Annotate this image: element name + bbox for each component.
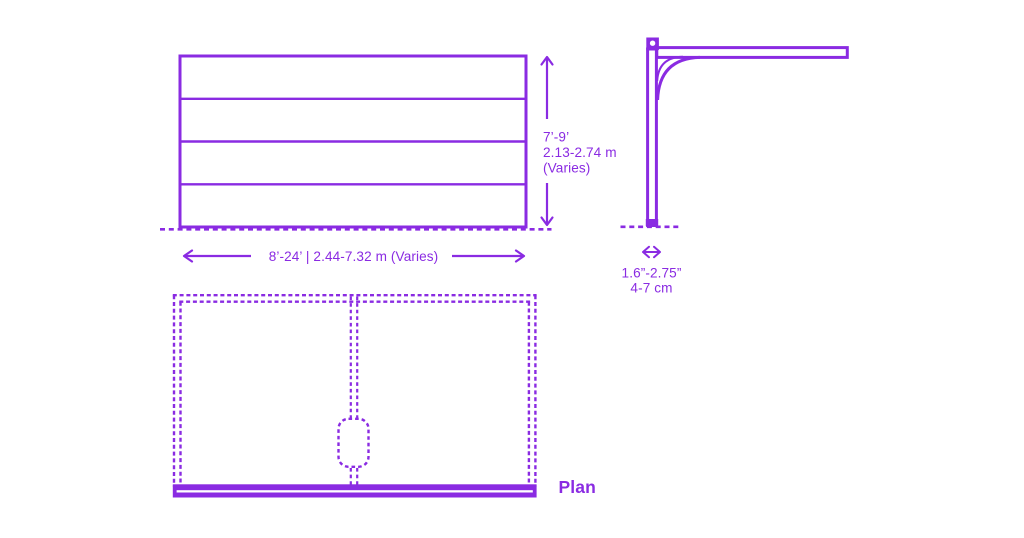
height-dimension: 7’-9’ 2.13-2.74 m (Varies)	[542, 57, 617, 225]
elevation-view: 7’-9’ 2.13-2.74 m (Varies) 8’-24’ | 2.44…	[160, 56, 617, 264]
garage-door-drawing: 7’-9’ 2.13-2.74 m (Varies) 8’-24’ | 2.44…	[0, 0, 1024, 538]
roller-icon	[650, 41, 655, 46]
drawing-canvas: 7’-9’ 2.13-2.74 m (Varies) 8’-24’ | 2.44…	[0, 0, 1024, 538]
door-plan-bar-stripe	[177, 490, 533, 492]
height-varies-label: (Varies)	[543, 161, 590, 176]
height-imperial-label: 7’-9’	[543, 130, 569, 145]
thickness-imperial-label: 1.6”-2.75”	[622, 266, 682, 281]
thickness-dimension: 1.6”-2.75” 4-7 cm	[622, 247, 682, 296]
height-metric-label: 2.13-2.74 m	[543, 145, 617, 160]
horizontal-track	[657, 48, 848, 58]
plan-view: Plan	[173, 295, 596, 497]
opener-unit	[339, 419, 369, 467]
side-view: 1.6”-2.75” 4-7 cm	[621, 38, 848, 296]
post-base	[646, 219, 658, 226]
thickness-metric-label: 4-7 cm	[630, 281, 672, 296]
door-section-post	[648, 49, 657, 226]
width-label: 8’-24’ | 2.44-7.32 m (Varies)	[269, 249, 439, 264]
plan-view-label: Plan	[559, 477, 596, 497]
width-dimension: 8’-24’ | 2.44-7.32 m (Varies)	[184, 249, 524, 264]
